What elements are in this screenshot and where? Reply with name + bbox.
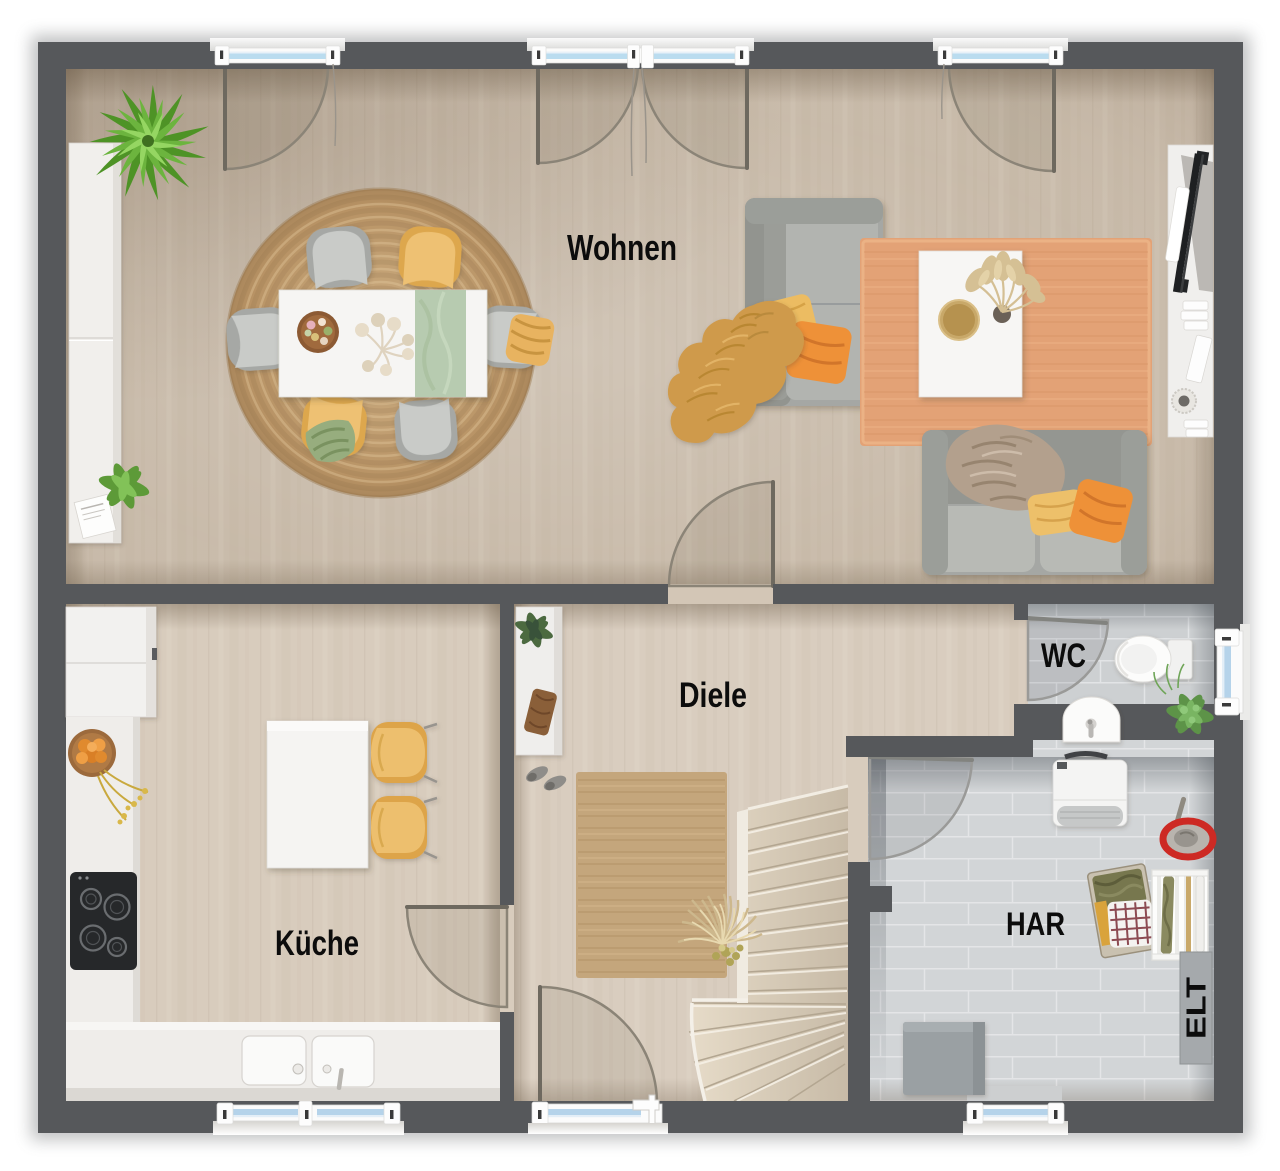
svg-text:ELT: ELT: [1181, 977, 1212, 1039]
svg-text:WC: WC: [1041, 637, 1086, 675]
svg-text:Küche: Küche: [275, 924, 359, 963]
svg-text:HAR: HAR: [1006, 906, 1065, 942]
svg-text:Wohnen: Wohnen: [567, 227, 677, 268]
svg-text:Diele: Diele: [679, 676, 747, 715]
